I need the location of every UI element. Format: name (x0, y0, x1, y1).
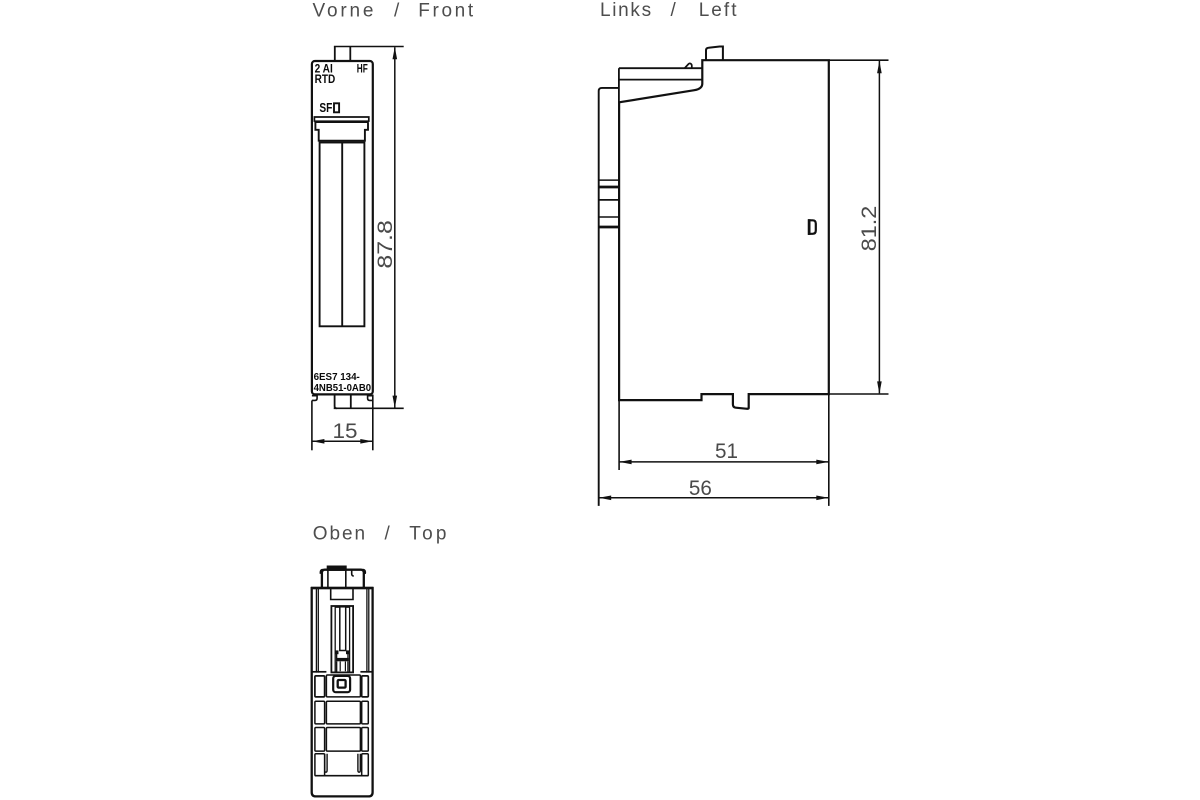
svg-text:Vorne: Vorne (313, 1, 374, 22)
svg-text:Front: Front (418, 1, 474, 22)
svg-text:Oben: Oben (313, 524, 366, 545)
svg-text:Links: Links (600, 0, 651, 21)
svg-text:56: 56 (689, 476, 712, 500)
svg-text:4NB51-0AB0: 4NB51-0AB0 (314, 382, 372, 394)
svg-text:51: 51 (715, 439, 738, 463)
svg-text:SF: SF (319, 101, 332, 115)
svg-text:Left: Left (699, 0, 738, 21)
svg-text:87.8: 87.8 (373, 220, 397, 269)
svg-text:HF: HF (357, 64, 368, 76)
svg-text:81.2: 81.2 (857, 206, 881, 252)
svg-text:/: / (385, 524, 391, 545)
svg-text:/: / (394, 1, 400, 22)
svg-text:/: / (671, 0, 677, 21)
svg-text:Top: Top (409, 524, 446, 545)
svg-text:RTD: RTD (315, 74, 336, 86)
svg-text:15: 15 (333, 419, 358, 443)
